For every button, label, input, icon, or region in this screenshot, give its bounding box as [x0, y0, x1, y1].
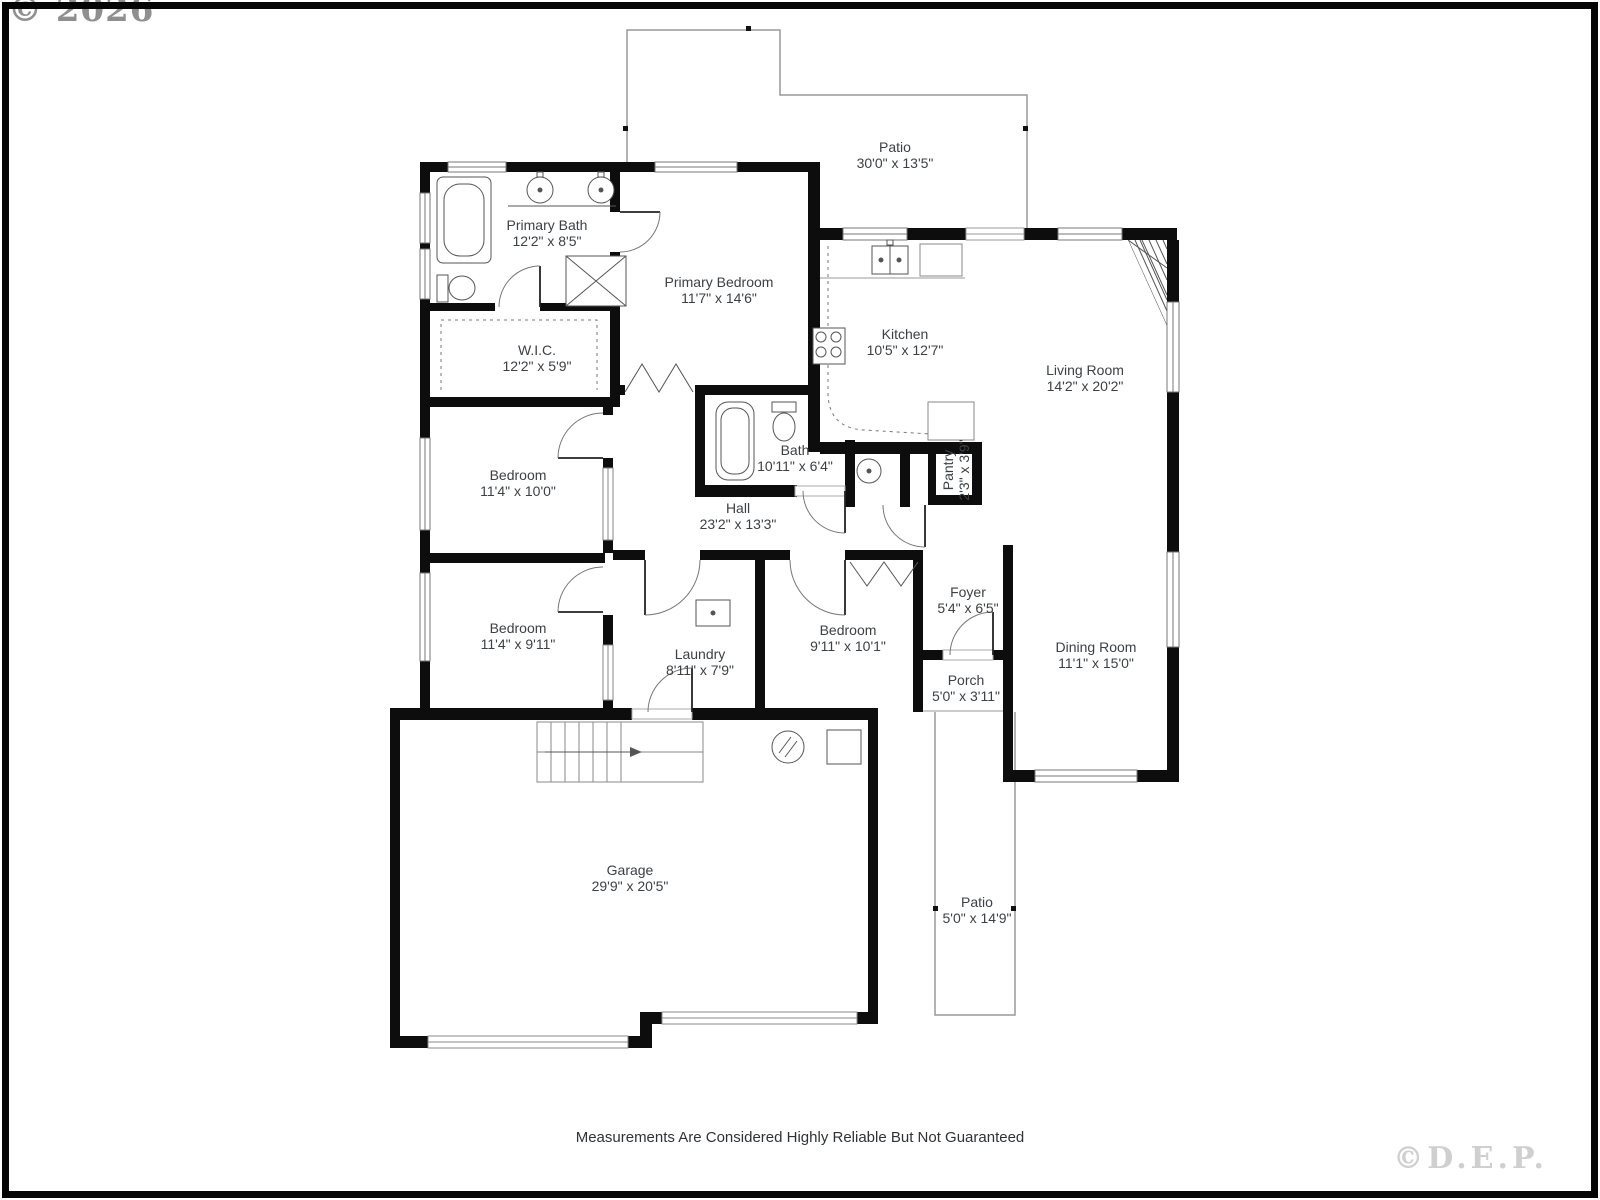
measurement-disclaimer: Measurements Are Considered Highly Relia… [0, 1129, 1600, 1146]
fridge-icon [928, 402, 974, 440]
water-heater-icon [772, 731, 804, 763]
room-label-hall: Hall 23'2" x 13'3" [700, 500, 777, 532]
room-dims: 14'2" x 20'2" [1046, 378, 1124, 394]
toilet-icon [772, 402, 796, 441]
bifold-door-primary-bedroom [625, 364, 693, 392]
floor-plan-drawing [0, 0, 1600, 1200]
room-name: Bedroom [481, 620, 556, 636]
room-name: Living Room [1046, 362, 1124, 378]
room-label-bedroom-1: Bedroom 11'4" x 10'0" [480, 467, 556, 499]
room-label-porch: Porch 5'0" x 3'11" [932, 672, 1000, 704]
room-label-garage: Garage 29'9" x 20'5" [592, 862, 669, 894]
room-name: Foyer [937, 584, 998, 600]
room-name: Bath [757, 442, 833, 458]
room-label-patio-top: Patio 30'0" x 13'5" [857, 139, 934, 171]
room-dims: 9'11" x 10'1" [810, 638, 886, 654]
room-dims: 8'11" x 7'9" [666, 662, 734, 678]
room-dims: 12'2" x 8'5" [507, 233, 588, 249]
room-label-bath: Bath 10'11" x 6'4" [757, 442, 833, 474]
kitchen-sink-icon [872, 240, 908, 274]
room-dims: 10'11" x 6'4" [757, 458, 833, 474]
room-label-bedroom-3: Bedroom 9'11" x 10'1" [810, 622, 886, 654]
room-name: Porch [932, 672, 1000, 688]
room-dims: 30'0" x 13'5" [857, 155, 934, 171]
room-label-dining-room: Dining Room 11'1" x 15'0" [1056, 639, 1137, 671]
stairs [537, 722, 703, 782]
room-dims: 12'2" x 5'9" [503, 358, 572, 374]
room-name: Hall [700, 500, 777, 516]
room-dims: 11'4" x 10'0" [480, 483, 556, 499]
shower-icon [566, 256, 626, 306]
room-dims: 5'0" x 3'11" [932, 688, 1000, 704]
room-label-patio-bottom: Patio 5'0" x 14'9" [943, 894, 1012, 926]
room-dims: 11'4" x 9'11" [481, 636, 556, 652]
room-label-bedroom-2: Bedroom 11'4" x 9'11" [481, 620, 556, 652]
room-label-laundry: Laundry 8'11" x 7'9" [666, 646, 734, 678]
room-dims: 10'5" x 12'7" [867, 342, 944, 358]
room-name: W.I.C. [503, 342, 572, 358]
room-name: Pantry [940, 439, 956, 500]
room-dims: 2'3" x 3'9" [956, 439, 972, 500]
room-name: Patio [943, 894, 1012, 910]
room-label-primary-bath: Primary Bath 12'2" x 8'5" [507, 217, 588, 249]
room-dims: 29'9" x 20'5" [592, 878, 669, 894]
room-name: Patio [857, 139, 934, 155]
room-label-wic: W.I.C. 12'2" x 5'9" [503, 342, 572, 374]
room-name: Primary Bath [507, 217, 588, 233]
room-label-foyer: Foyer 5'4" x 6'5" [937, 584, 998, 616]
room-label-primary-bedroom: Primary Bedroom 11'7" x 14'6" [665, 274, 774, 306]
floor-plan-page: Patio 30'0" x 13'5" Primary Bath 12'2" x… [0, 0, 1600, 1200]
bifold-door-bedroom3-closet [850, 562, 918, 586]
walls [390, 162, 1179, 1048]
fireplace-hatch [1128, 240, 1167, 326]
toilet-icon [437, 275, 475, 302]
laundry-fixtures [696, 600, 730, 626]
room-dims: 11'1" x 15'0" [1056, 655, 1137, 671]
room-name: Bedroom [810, 622, 886, 638]
patio-outline-bottom [923, 711, 1015, 1015]
room-name: Kitchen [867, 326, 944, 342]
room-dims: 5'4" x 6'5" [937, 600, 998, 616]
dep-logo-watermark: ©D.E.P. [1393, 1141, 1548, 1176]
furnace-icon [827, 730, 861, 764]
room-name: Garage [592, 862, 669, 878]
room-dims: 23'2" x 13'3" [700, 516, 777, 532]
dishwasher-icon [920, 244, 962, 276]
windows [420, 162, 1179, 1048]
room-dims: 5'0" x 14'9" [943, 910, 1012, 926]
room-label-pantry: Pantry 2'3" x 3'9" [940, 439, 972, 500]
room-label-living-room: Living Room 14'2" x 20'2" [1046, 362, 1124, 394]
room-name: Bedroom [480, 467, 556, 483]
garage-equipment [772, 730, 861, 764]
room-name: Dining Room [1056, 639, 1137, 655]
room-name: Laundry [666, 646, 734, 662]
room-name: Primary Bedroom [665, 274, 774, 290]
room-dims: 11'7" x 14'6" [665, 290, 774, 306]
stove-icon [813, 328, 845, 364]
room-label-kitchen: Kitchen 10'5" x 12'7" [867, 326, 944, 358]
copyright-year-watermark: © 2026 [8, 0, 154, 30]
patio-outline-top [627, 30, 1027, 232]
